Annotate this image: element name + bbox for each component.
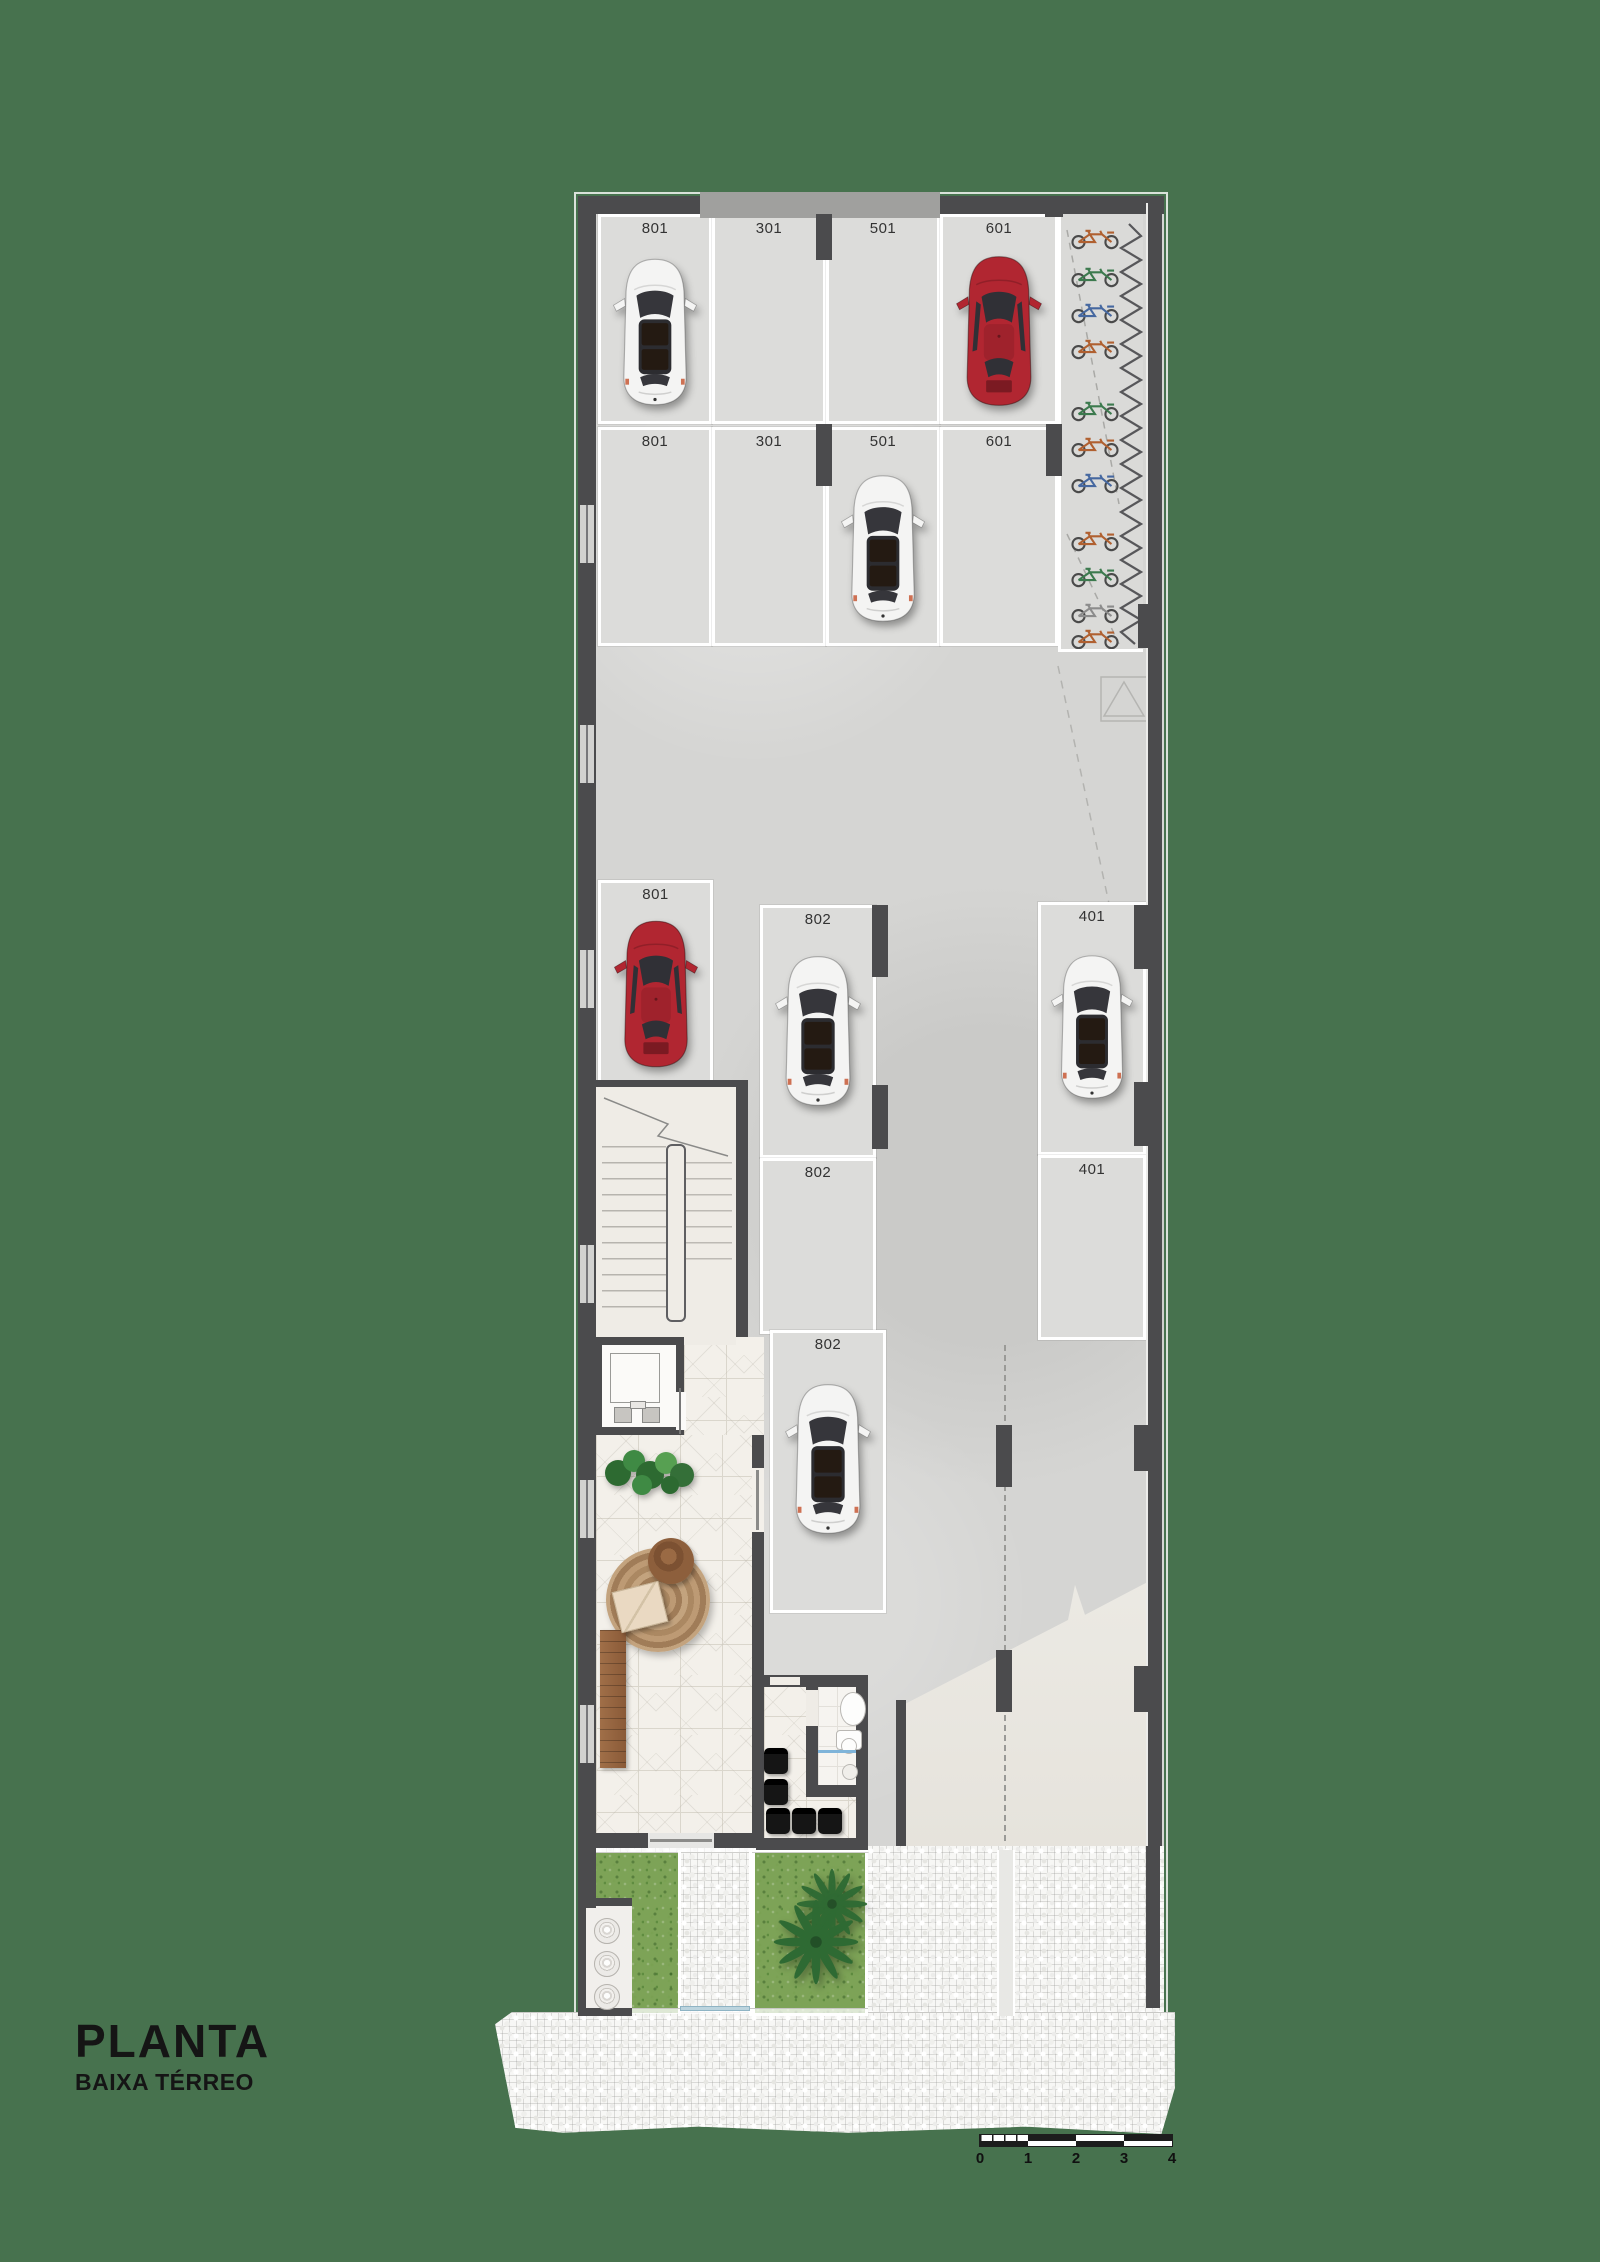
- floor-plan-canvas: 801 301 501 601 801 301 501 601: [0, 0, 1600, 2262]
- parking-space-802-middle-b: 802: [760, 1158, 876, 1334]
- sink-icon: [840, 1692, 866, 1726]
- space-label: 501: [829, 433, 937, 450]
- space-label: 802: [763, 1164, 873, 1181]
- scale-tick: 3: [1120, 2150, 1128, 2167]
- palm-tree-icon: [752, 1854, 868, 2010]
- pillar: [816, 424, 832, 486]
- utility-meters-icon: [594, 1918, 620, 1944]
- service-room-bottom-wall: [756, 1838, 868, 1850]
- stair-wall: [736, 1080, 748, 1337]
- wood-bench-icon: [600, 1630, 626, 1768]
- bicycle-icon: [1072, 231, 1117, 648]
- pouf-seat: [648, 1538, 694, 1584]
- pillar: [1138, 604, 1162, 648]
- stair-top-wall: [596, 1080, 748, 1087]
- parking-space-801-top-r1: 801: [598, 214, 712, 424]
- black-chair-icon: [766, 1808, 790, 1834]
- space-label: 501: [829, 220, 937, 237]
- stair-railing: [666, 1144, 686, 1322]
- car-top-white-icon: [613, 259, 696, 404]
- bathroom-bottom-wall: [806, 1785, 868, 1797]
- entrance-door-line: [650, 1839, 712, 1842]
- utility-meters-icon: [594, 1951, 620, 1977]
- floor-drain-icon: [842, 1764, 858, 1780]
- scale-tick: 0: [976, 2150, 984, 2167]
- pillar: [1045, 203, 1063, 217]
- black-chair-icon: [764, 1748, 788, 1774]
- pillar: [996, 1425, 1012, 1487]
- stair-break-line: [598, 1090, 734, 1162]
- scale-tick: 2: [1072, 2150, 1080, 2167]
- space-label: 802: [763, 911, 873, 928]
- path-edge: [678, 1850, 681, 2016]
- entry-gate-glass: [680, 2006, 750, 2011]
- car-top-white-icon: [781, 1357, 875, 1561]
- car-top-white-icon: [837, 456, 929, 641]
- parking-space-801-top-r2: 801: [598, 427, 712, 646]
- parking-space-501-top-r1: 501: [826, 214, 940, 424]
- parking-space-301-top-r1: 301: [712, 214, 826, 424]
- pillar: [1134, 1425, 1154, 1471]
- pillar: [872, 1085, 888, 1149]
- sidewalk: [495, 2012, 1175, 2134]
- scale-tick: 1: [1024, 2150, 1032, 2167]
- pillar: [996, 1650, 1012, 1712]
- left-wall: [578, 196, 596, 1908]
- parking-space-601-top-r2: 601: [940, 427, 1058, 646]
- title-main: PLANTA: [75, 2016, 270, 2067]
- right-wall: [1146, 203, 1162, 1846]
- car-top-white-icon: [1047, 927, 1137, 1127]
- space-label: 802: [773, 1336, 883, 1353]
- window-opening: [580, 1480, 594, 1538]
- bike-parking-corridor: [1058, 214, 1143, 652]
- pillar: [1134, 1666, 1154, 1712]
- car-top-white-icon: [609, 241, 701, 423]
- pillar: [872, 905, 888, 977]
- upper-floor-projection-line: [1004, 1345, 1006, 1841]
- pillar: [1046, 424, 1062, 476]
- staircase: [596, 1080, 736, 1345]
- window-opening: [580, 725, 594, 783]
- window-opening: [580, 1705, 594, 1763]
- space-label: 401: [1041, 908, 1143, 925]
- service-room-door-gap: [770, 1677, 800, 1685]
- drawing-title: PLANTA BAIXA TÉRREO: [75, 2016, 270, 2096]
- scale-tick: 4: [1168, 2150, 1176, 2167]
- window-opening: [580, 1245, 594, 1303]
- elevator: [594, 1337, 684, 1435]
- parking-space-601-top-r1: 601: [940, 214, 1058, 424]
- window-opening: [580, 505, 594, 563]
- wave-bike-rack-icon: [1061, 214, 1143, 649]
- vent-shaft-symbol: [1100, 676, 1148, 722]
- car-top-white-icon: [771, 930, 865, 1132]
- car-top-red-icon: [610, 905, 702, 1083]
- car-top-red-icon: [952, 239, 1046, 423]
- pillar: [1134, 905, 1154, 969]
- parking-space-301-top-r2: 301: [712, 427, 826, 646]
- window-opening: [580, 950, 594, 1008]
- front-lawn: [630, 1905, 680, 2013]
- space-label: 301: [715, 220, 823, 237]
- plant-icon: [600, 1432, 700, 1504]
- space-label: 401: [1041, 1161, 1143, 1178]
- space-label: 801: [601, 886, 710, 903]
- space-label: 801: [601, 220, 709, 237]
- ramp-side-wall: [896, 1700, 906, 1846]
- parking-space-501-top-r2: 501: [826, 427, 940, 646]
- parking-space-801-middle: 801: [598, 880, 713, 1088]
- space-label: 601: [943, 220, 1055, 237]
- parking-space-401-middle-a: 401: [1038, 902, 1146, 1155]
- lobby-side-door-line: [756, 1470, 759, 1530]
- pillar: [1134, 1082, 1154, 1146]
- black-chair-icon: [792, 1808, 816, 1834]
- lobby-floor-upper: [684, 1337, 764, 1437]
- elevator-door-gap: [676, 1392, 686, 1430]
- title-sub: BAIXA TÉRREO: [75, 2069, 270, 2096]
- elevator-door-line: [679, 1388, 681, 1434]
- parking-space-401-middle-b: 401: [1038, 1155, 1146, 1340]
- bathroom-door-gap: [806, 1690, 818, 1726]
- utility-meters-icon: [594, 1984, 620, 2010]
- parking-space-802-middle-c: 802: [770, 1330, 886, 1613]
- space-label: 801: [601, 433, 709, 450]
- scale-bar: 0 1 2 3 4: [979, 2126, 1189, 2172]
- parking-space-802-middle-a: 802: [760, 905, 876, 1158]
- elevator-cab: [610, 1353, 660, 1403]
- curb-strip: [997, 1850, 1015, 2016]
- space-label: 601: [943, 433, 1055, 450]
- meters-niche-wall: [578, 1898, 586, 2016]
- scale-bar-graphic: [979, 2134, 1173, 2147]
- water-line: [818, 1750, 856, 1753]
- black-chair-icon: [818, 1808, 842, 1834]
- pillar: [816, 214, 832, 260]
- black-chair-icon: [764, 1779, 788, 1805]
- right-wall-lower: [1146, 1846, 1160, 2008]
- space-label: 301: [715, 433, 823, 450]
